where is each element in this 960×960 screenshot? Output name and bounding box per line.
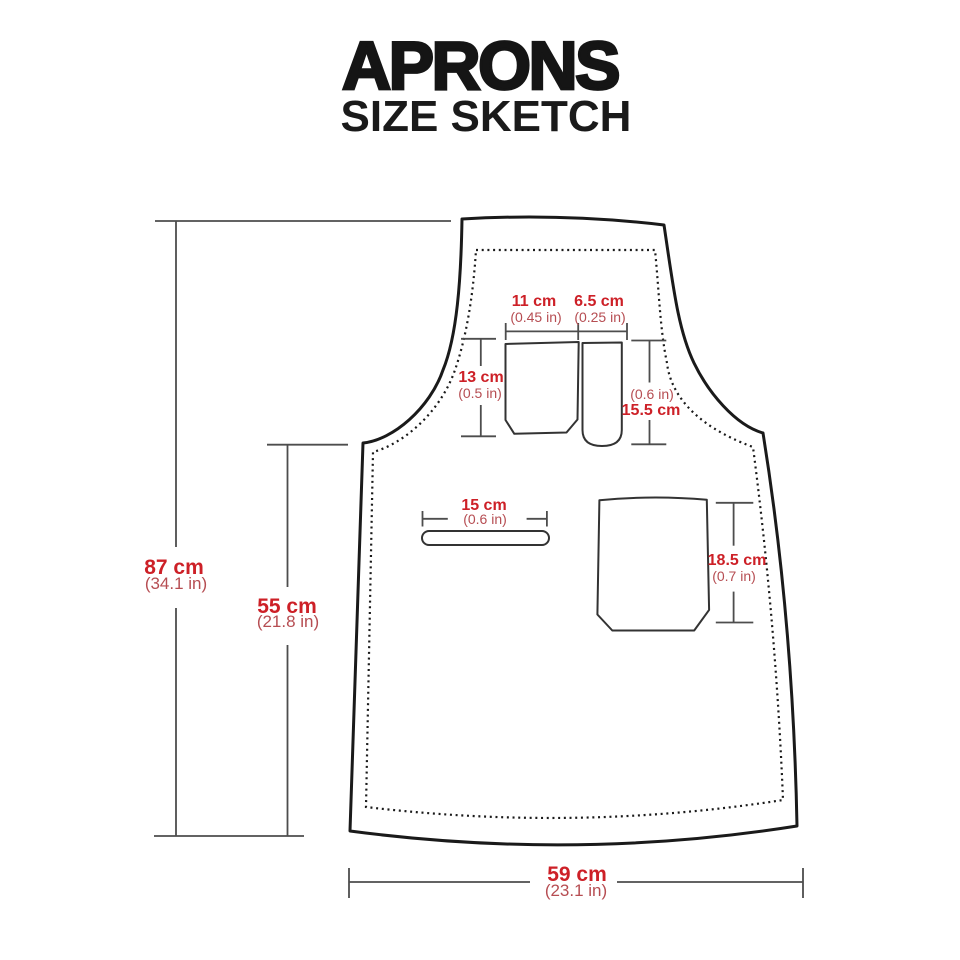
svg-text:15.5 cm: 15.5 cm (622, 402, 681, 419)
svg-text:SIZE SKETCH: SIZE SKETCH (341, 92, 632, 141)
svg-text:(0.6 in): (0.6 in) (463, 511, 507, 527)
svg-text:(21.8 in): (21.8 in) (257, 612, 319, 631)
svg-text:(34.1 in): (34.1 in) (145, 574, 207, 593)
svg-text:6.5 cm: 6.5 cm (574, 293, 624, 310)
svg-text:11 cm: 11 cm (512, 293, 556, 310)
svg-text:18.5 cm: 18.5 cm (708, 552, 767, 569)
svg-text:(23.1 in): (23.1 in) (545, 881, 607, 900)
svg-text:13 cm: 13 cm (458, 369, 503, 386)
svg-text:(0.25 in): (0.25 in) (574, 309, 625, 325)
svg-text:(0.45 in): (0.45 in) (510, 309, 561, 325)
svg-text:(0.7 in): (0.7 in) (712, 568, 756, 584)
svg-text:(0.6 in): (0.6 in) (630, 386, 674, 402)
svg-text:(0.5 in): (0.5 in) (458, 385, 502, 401)
